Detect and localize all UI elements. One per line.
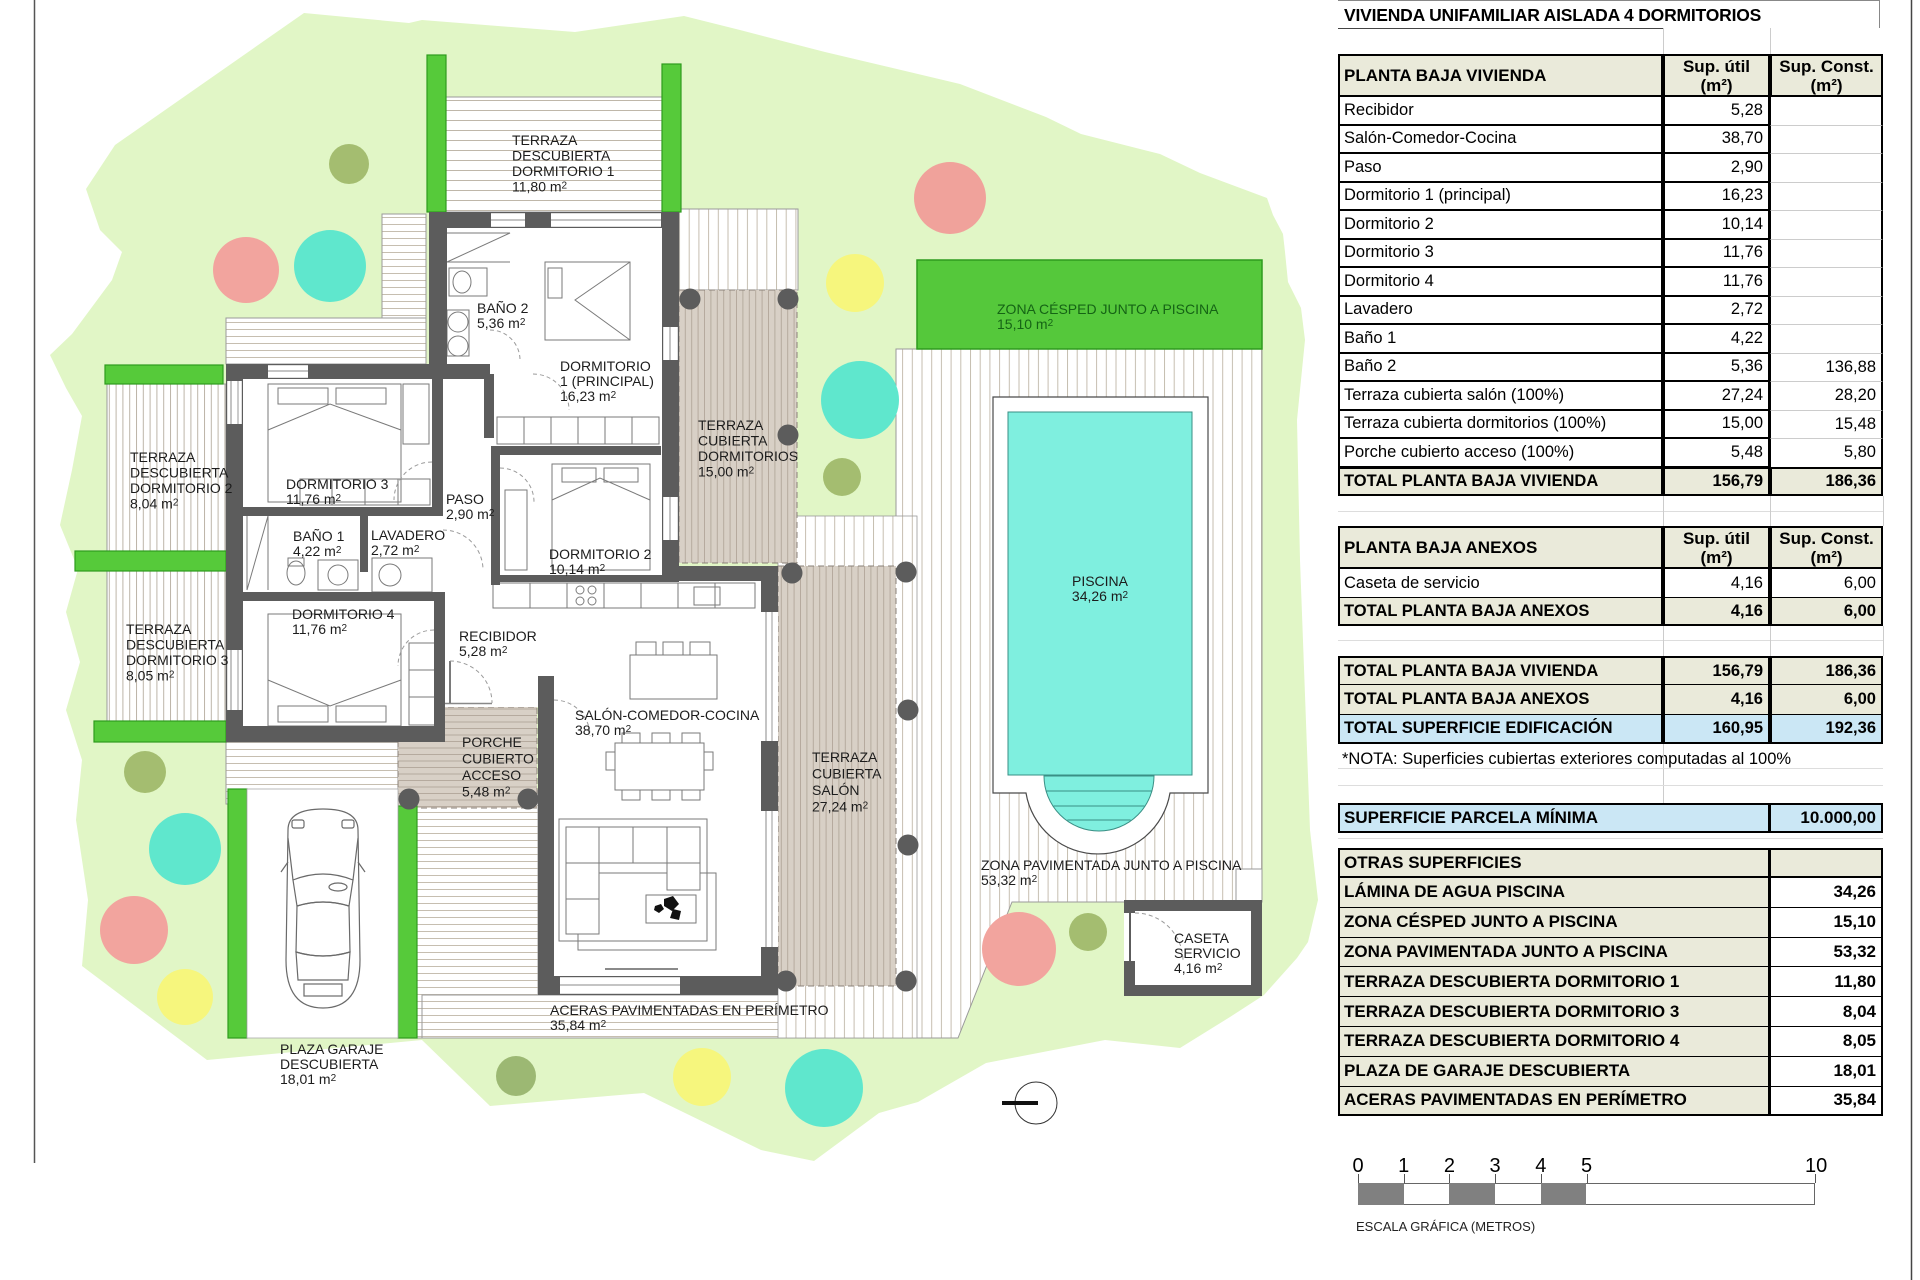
svg-text:PLAZA GARAJEDESCUBIERTA18,01 m: PLAZA GARAJEDESCUBIERTA18,01 m2 <box>280 1041 383 1087</box>
svg-text:BAÑO 25,36 m2: BAÑO 25,36 m2 <box>477 300 529 331</box>
svg-text:PISCINA34,26 m2: PISCINA34,26 m2 <box>1072 573 1129 604</box>
svg-text:BAÑO 14,22 m2: BAÑO 14,22 m2 <box>293 528 345 559</box>
